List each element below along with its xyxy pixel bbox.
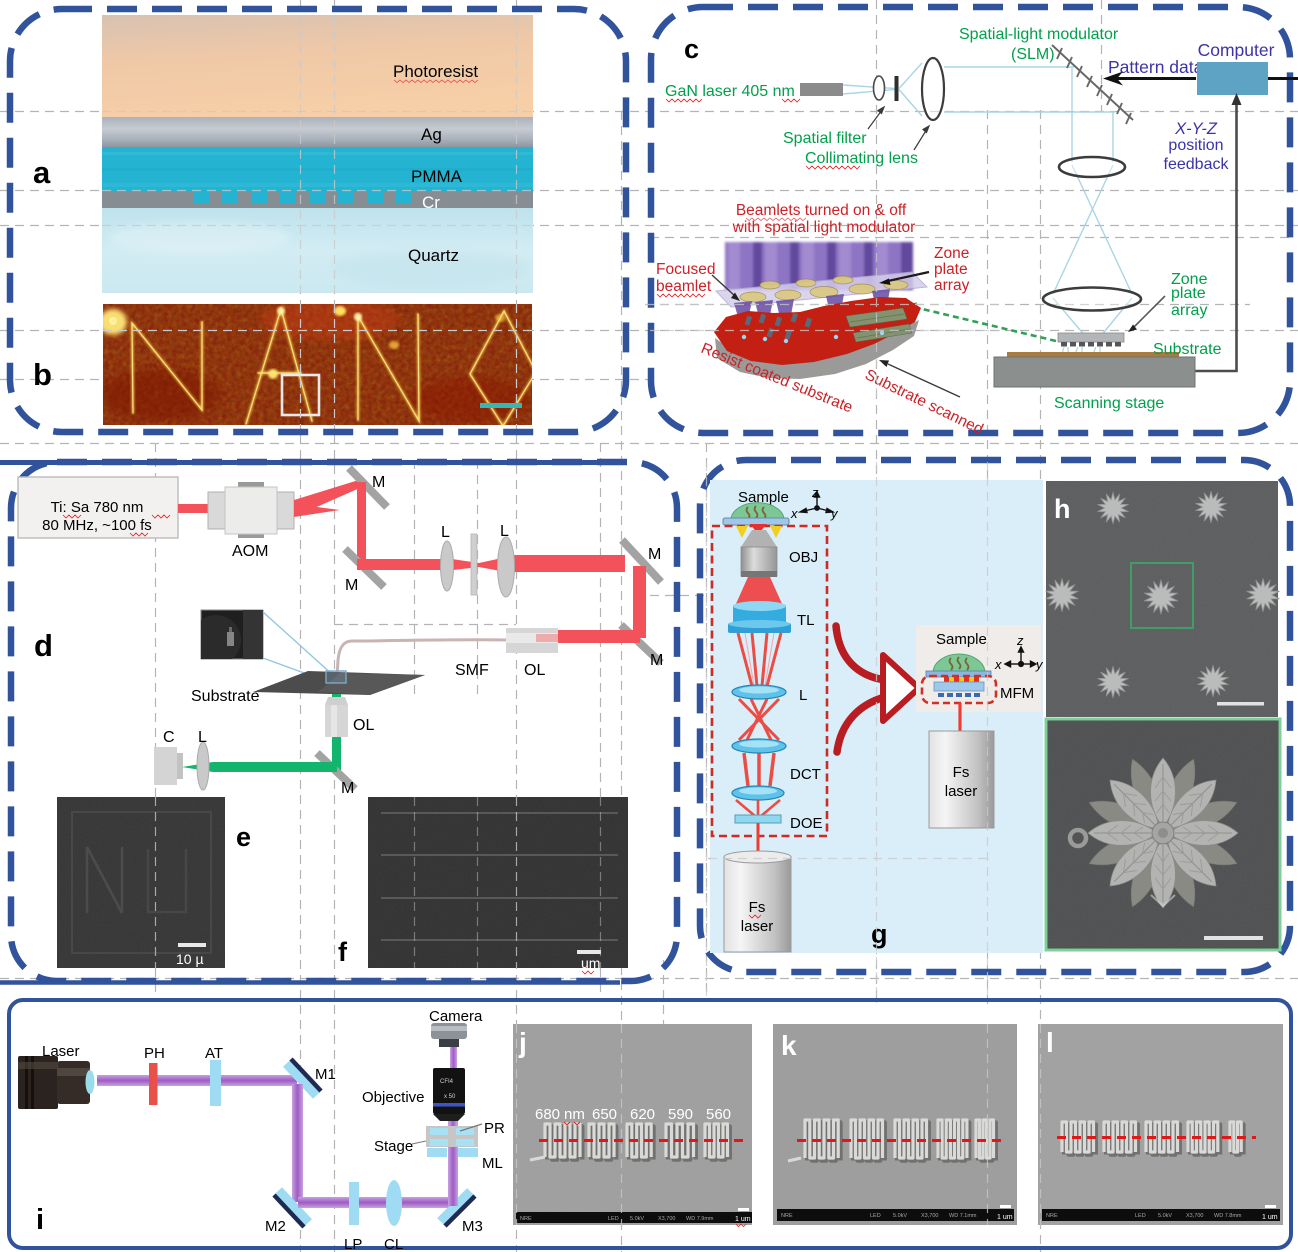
svg-text:WD 7.9mm: WD 7.9mm	[686, 1216, 714, 1222]
svg-text:M: M	[372, 474, 385, 491]
svg-text:g: g	[871, 919, 888, 949]
svg-text:plate: plate	[1171, 285, 1206, 302]
svg-text:LED: LED	[870, 1213, 881, 1219]
svg-text:X3,700: X3,700	[658, 1216, 675, 1222]
svg-text:L: L	[500, 523, 509, 540]
svg-text:ML: ML	[482, 1155, 503, 1172]
svg-text:DCT: DCT	[790, 766, 821, 783]
svg-text:1 um: 1 um	[997, 1214, 1013, 1221]
svg-text:c: c	[684, 34, 699, 64]
svg-text:Photoresist: Photoresist	[393, 62, 478, 81]
svg-text:650: 650	[592, 1106, 617, 1123]
svg-text:position: position	[1168, 137, 1223, 154]
svg-text:DOE: DOE	[790, 815, 823, 832]
svg-text:SMF: SMF	[455, 662, 489, 679]
svg-text:L: L	[799, 687, 807, 704]
svg-text:OL: OL	[353, 717, 374, 734]
svg-text:Zone: Zone	[934, 245, 969, 262]
svg-text:5.0kV: 5.0kV	[630, 1216, 644, 1222]
svg-text:L: L	[198, 729, 207, 746]
svg-text:1 um: 1 um	[735, 1216, 751, 1223]
svg-text:LP: LP	[344, 1236, 362, 1252]
svg-text:NRE: NRE	[1046, 1213, 1058, 1219]
svg-text:560: 560	[706, 1106, 731, 1123]
svg-text:Scanning stage: Scanning stage	[1054, 395, 1164, 412]
svg-text:Camera: Camera	[429, 1008, 483, 1025]
svg-text:um: um	[581, 955, 600, 971]
svg-text:X3,700: X3,700	[1186, 1213, 1203, 1219]
svg-text:nm: nm	[564, 1106, 585, 1123]
svg-text:M: M	[648, 546, 661, 563]
svg-text:M1: M1	[315, 1066, 336, 1083]
svg-text:(SLM): (SLM)	[1011, 46, 1055, 63]
svg-text:Substrate: Substrate	[191, 688, 260, 705]
svg-text:Cr: Cr	[422, 193, 440, 212]
svg-text:NRE: NRE	[781, 1213, 793, 1219]
svg-text:k: k	[781, 1030, 797, 1061]
svg-text:X-Y-Z: X-Y-Z	[1174, 120, 1218, 138]
svg-text:LED: LED	[608, 1216, 619, 1222]
svg-text:WD 7.1mm: WD 7.1mm	[949, 1213, 977, 1219]
svg-text:Fs: Fs	[749, 899, 766, 916]
svg-text:Spatial-light modulator: Spatial-light modulator	[959, 26, 1119, 43]
svg-text:AOM: AOM	[232, 543, 268, 560]
svg-text:M: M	[345, 577, 358, 594]
svg-text:d: d	[34, 628, 53, 663]
svg-text:PR: PR	[484, 1120, 505, 1137]
svg-text:620: 620	[630, 1106, 655, 1123]
svg-text:Ti: Sa 780 nm: Ti: Sa 780 nm	[51, 499, 144, 516]
svg-text:Sample: Sample	[936, 631, 987, 648]
svg-text:Pattern data: Pattern data	[1108, 57, 1204, 77]
svg-text:h: h	[1054, 494, 1071, 524]
svg-text:Objective: Objective	[362, 1089, 425, 1106]
svg-text:CL: CL	[384, 1236, 403, 1252]
svg-text:plate: plate	[934, 261, 968, 278]
svg-text:with spatial light modulator: with spatial light modulator	[732, 219, 916, 236]
svg-text:beamlet: beamlet	[656, 278, 712, 295]
svg-text:80 MHz, ~100 fs: 80 MHz, ~100 fs	[42, 517, 152, 534]
svg-text:b: b	[33, 357, 52, 392]
svg-text:590: 590	[668, 1106, 693, 1123]
svg-text:Stage: Stage	[374, 1138, 413, 1155]
svg-text:Spatial filter: Spatial filter	[783, 130, 867, 147]
svg-text:laser: laser	[945, 783, 978, 800]
svg-text:f: f	[338, 937, 348, 967]
svg-text:z: z	[811, 485, 819, 500]
svg-text:OL: OL	[524, 662, 545, 679]
svg-text:Fs: Fs	[953, 764, 970, 781]
svg-text:Collimating lens: Collimating lens	[805, 150, 918, 167]
svg-text:e: e	[236, 822, 251, 852]
svg-text:Quartz: Quartz	[408, 246, 459, 265]
svg-text:WD 7.8mm: WD 7.8mm	[1214, 1213, 1242, 1219]
svg-text:5.0kV: 5.0kV	[893, 1213, 907, 1219]
svg-text:laser: laser	[741, 918, 774, 935]
svg-text:CFI4: CFI4	[440, 1079, 454, 1085]
svg-text:10 µ: 10 µ	[176, 951, 204, 967]
svg-text:Ag: Ag	[421, 125, 442, 144]
svg-text:1 um: 1 um	[1262, 1214, 1278, 1221]
svg-text:M: M	[341, 780, 354, 797]
svg-text:PMMA: PMMA	[411, 167, 463, 186]
svg-text:Beamlets turned on & off: Beamlets turned on & off	[736, 202, 907, 219]
svg-text:M3: M3	[462, 1218, 483, 1235]
svg-text:L: L	[441, 524, 450, 541]
svg-text:x 50: x 50	[444, 1094, 456, 1100]
svg-text:Computer: Computer	[1198, 40, 1275, 60]
svg-text:LED: LED	[1135, 1213, 1146, 1219]
svg-text:MFM: MFM	[1000, 685, 1034, 702]
svg-text:x: x	[994, 657, 1002, 672]
svg-text:x: x	[790, 506, 798, 521]
svg-text:680: 680	[535, 1106, 560, 1123]
svg-text:AT: AT	[205, 1045, 223, 1062]
svg-text:a: a	[33, 155, 51, 190]
svg-text:Substrate: Substrate	[1153, 341, 1222, 358]
svg-text:M: M	[650, 652, 663, 669]
svg-text:TL: TL	[797, 612, 815, 629]
svg-text:NRE: NRE	[520, 1216, 532, 1222]
svg-text:M2: M2	[265, 1218, 286, 1235]
svg-text:5.0kV: 5.0kV	[1158, 1213, 1172, 1219]
svg-text:OBJ: OBJ	[789, 549, 818, 566]
svg-text:j: j	[518, 1027, 527, 1058]
svg-text:l: l	[1046, 1027, 1054, 1058]
svg-text:GaN laser 405 nm: GaN laser 405 nm	[665, 83, 795, 100]
svg-text:C: C	[163, 729, 175, 746]
svg-text:Focused: Focused	[656, 261, 715, 278]
svg-text:z: z	[1016, 633, 1024, 648]
svg-text:i: i	[36, 1204, 44, 1236]
svg-text:feedback: feedback	[1164, 156, 1230, 173]
svg-text:PH: PH	[144, 1045, 165, 1062]
svg-text:X3,700: X3,700	[921, 1213, 938, 1219]
svg-text:array: array	[1171, 302, 1207, 319]
svg-text:array: array	[934, 277, 970, 294]
